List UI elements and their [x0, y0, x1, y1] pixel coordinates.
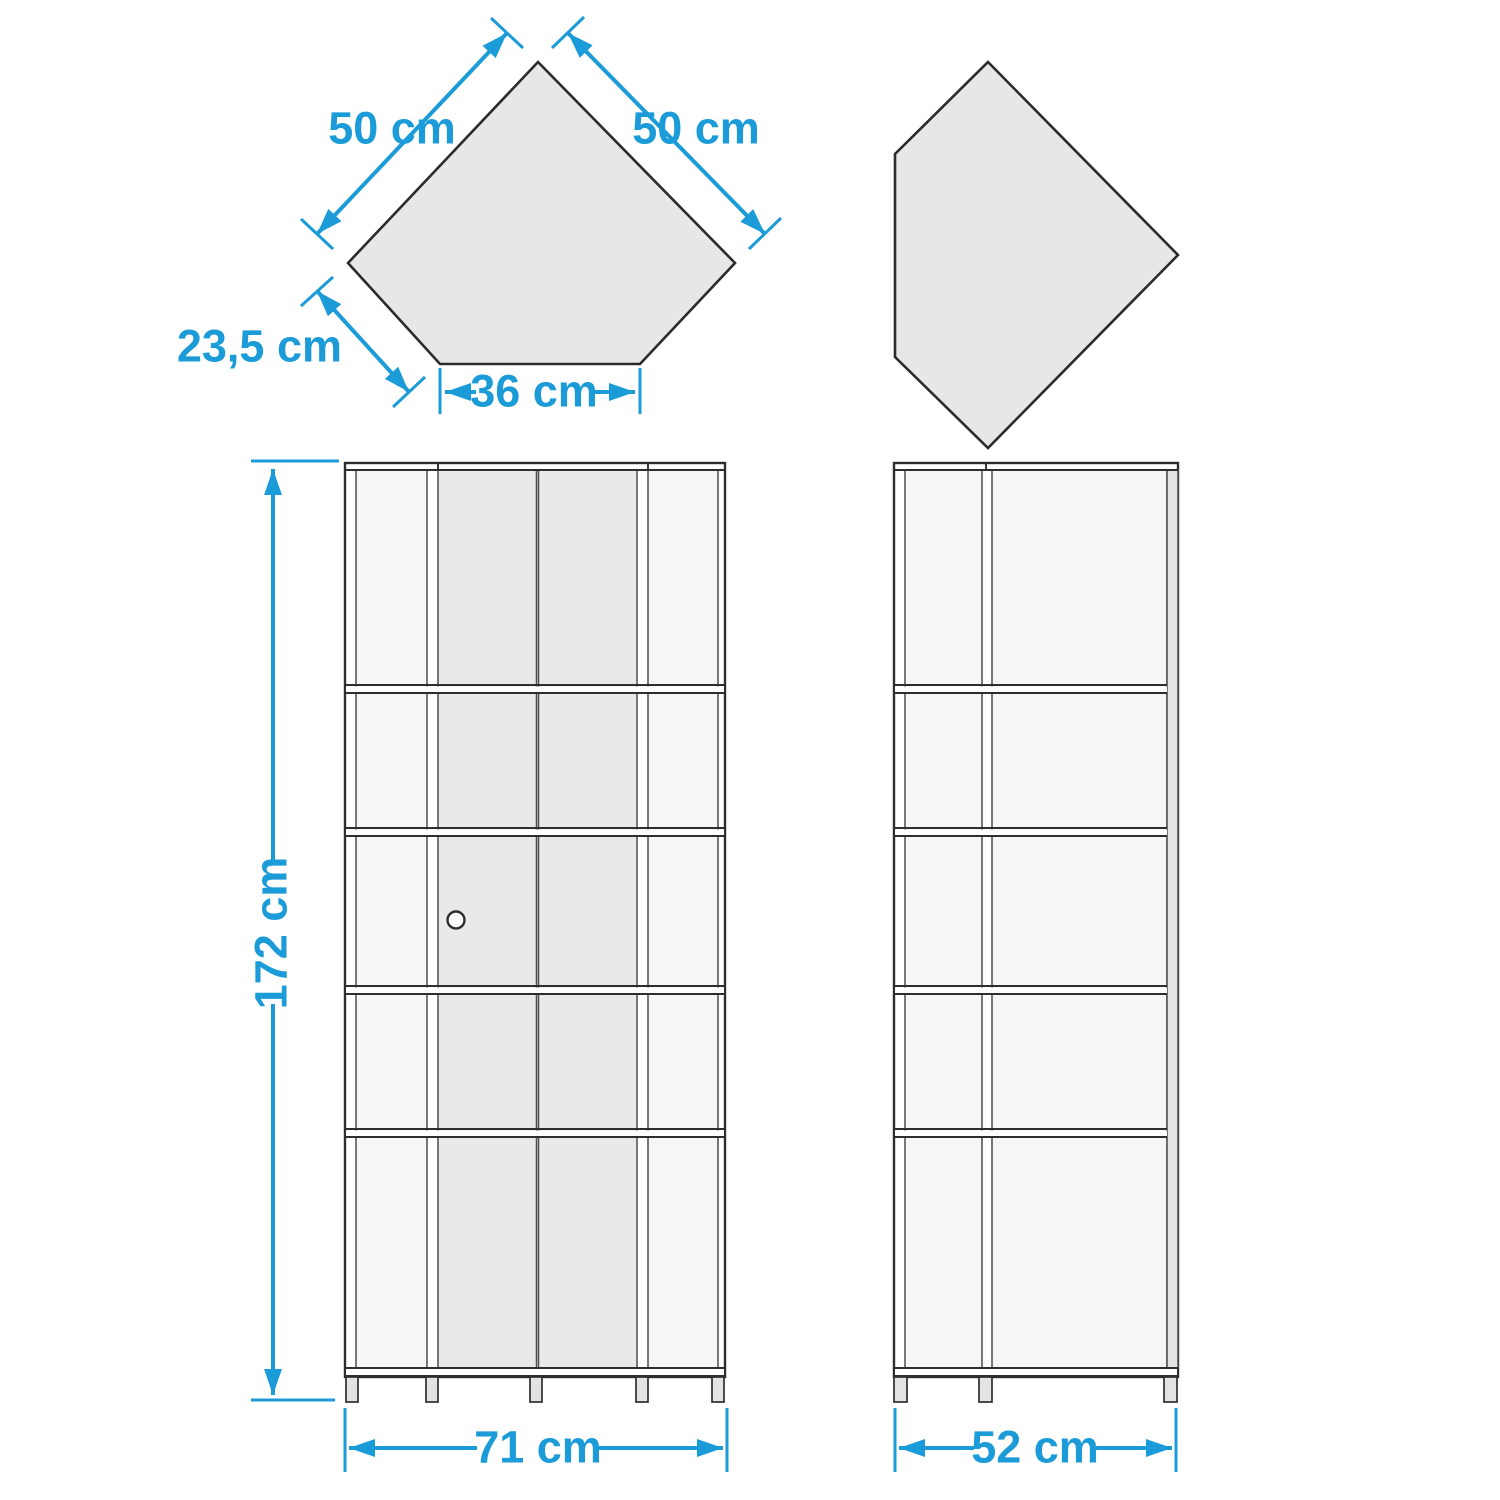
cabinet-dimension-drawing: 50 cm 50 cm 23,5 cm 36 cm [0, 0, 1500, 1500]
cabinet-foot [894, 1377, 907, 1402]
dim-label-52cm: 52 cm [971, 1422, 1099, 1473]
side-edge-strip [1167, 470, 1178, 1368]
front-side-panel-left [356, 470, 427, 1368]
dim-label-50cm-left: 50 cm [328, 103, 456, 154]
dim-label-50cm-right: 50 cm [632, 103, 760, 154]
cabinet-foot [979, 1377, 992, 1402]
cabinet-foot [636, 1377, 648, 1402]
dim-36cm: 36 cm [440, 366, 640, 417]
side-panel-wide [992, 470, 1167, 1368]
dim-71cm: 71 cm [345, 1408, 727, 1473]
dim-52cm: 52 cm [895, 1408, 1176, 1473]
dim-label-36cm: 36 cm [470, 366, 598, 417]
top-view-side [895, 62, 1178, 448]
front-side-panel-right [648, 470, 718, 1368]
corner-cabinet-plan-outline-rotated [895, 62, 1178, 448]
side-elevation: 52 cm [894, 463, 1178, 1473]
dim-label-71cm: 71 cm [474, 1422, 602, 1473]
cabinet-foot [426, 1377, 438, 1402]
cabinet-foot [530, 1377, 542, 1402]
dim-label-172cm: 172 cm [246, 857, 297, 1010]
dim-172cm: 172 cm [246, 461, 340, 1400]
door-panel-right [539, 470, 638, 1368]
cabinet-foot [712, 1377, 724, 1402]
dim-label-23-5cm: 23,5 cm [177, 321, 342, 372]
door-knob [448, 912, 465, 929]
cabinet-foot [1164, 1377, 1177, 1402]
front-elevation: 172 cm 71 cm [246, 461, 728, 1473]
cabinet-foot [346, 1377, 358, 1402]
dimension-drawing-page: 50 cm 50 cm 23,5 cm 36 cm [0, 0, 1500, 1500]
side-panel-narrow [905, 470, 982, 1368]
top-view-front: 50 cm 50 cm 23,5 cm 36 cm [177, 17, 781, 417]
